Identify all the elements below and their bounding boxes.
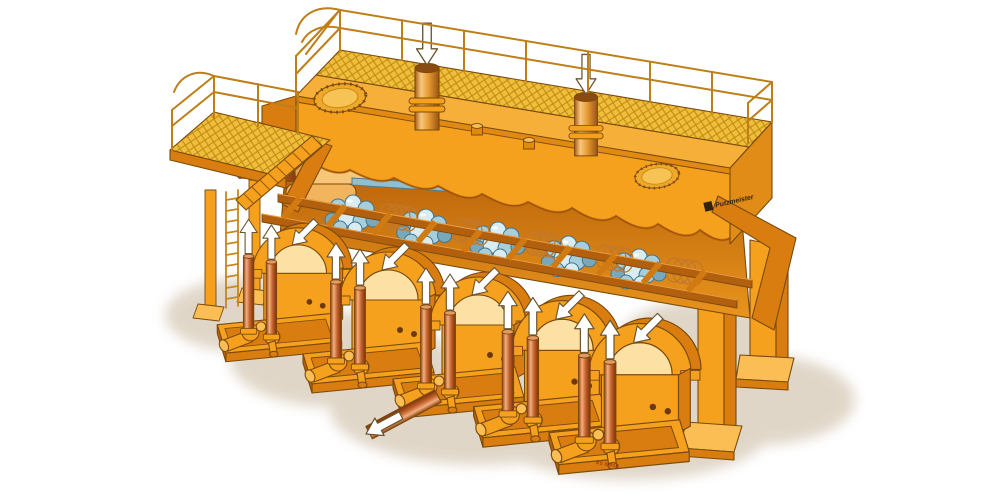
vent-cap-2	[524, 138, 535, 149]
base-foot	[736, 355, 794, 382]
base-foot	[193, 304, 224, 321]
vent-cap-1	[472, 124, 483, 135]
platform-leg	[205, 190, 216, 308]
illustration-canvas: Putzmeister KS 0981B	[0, 0, 1000, 500]
pump-station-illustration: Putzmeister KS 0981B	[0, 0, 1000, 500]
